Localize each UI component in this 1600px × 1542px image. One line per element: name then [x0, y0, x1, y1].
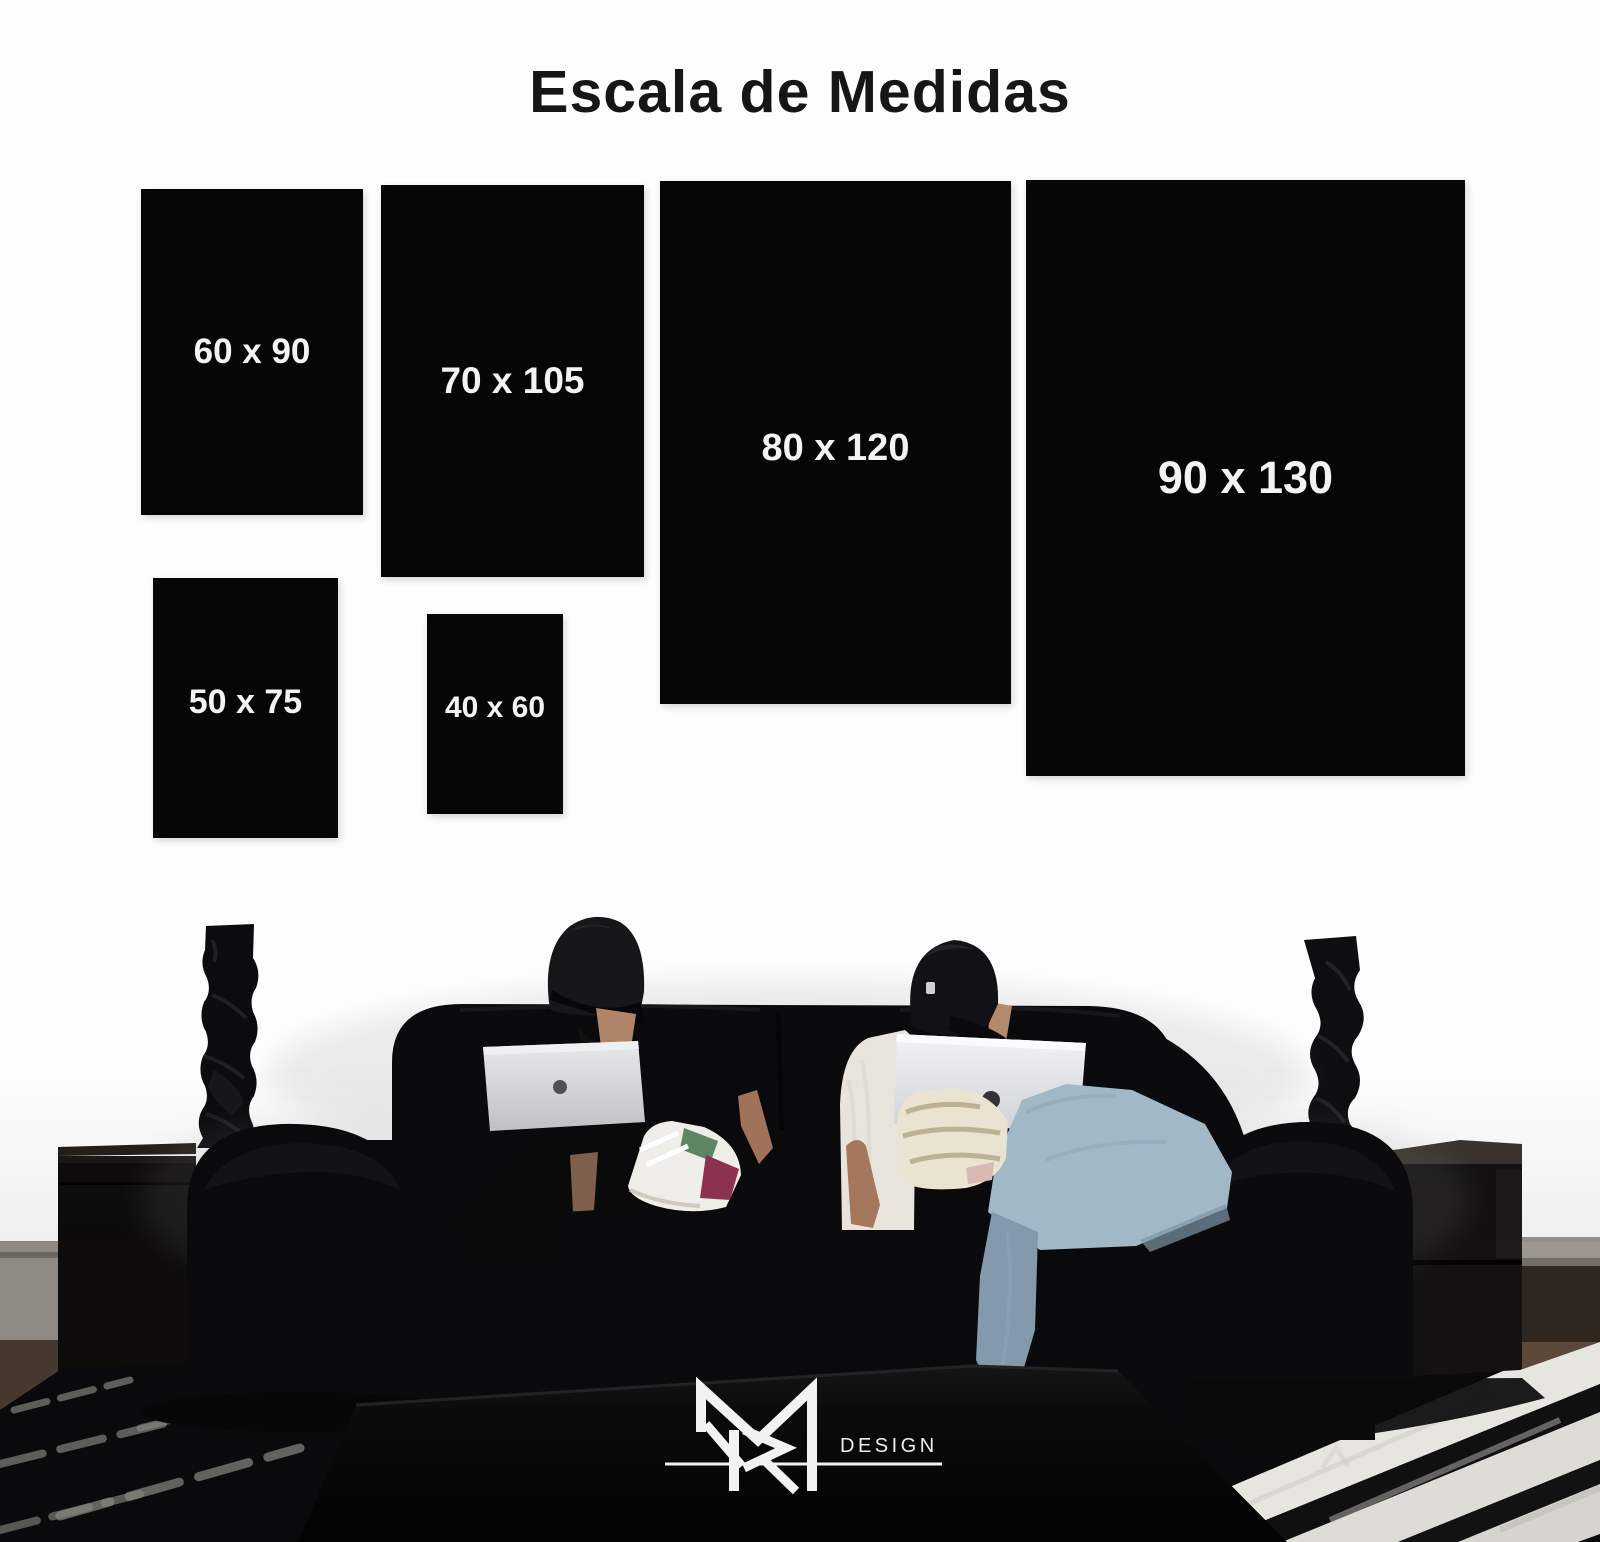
svg-text:DESIGN: DESIGN: [840, 1435, 938, 1457]
